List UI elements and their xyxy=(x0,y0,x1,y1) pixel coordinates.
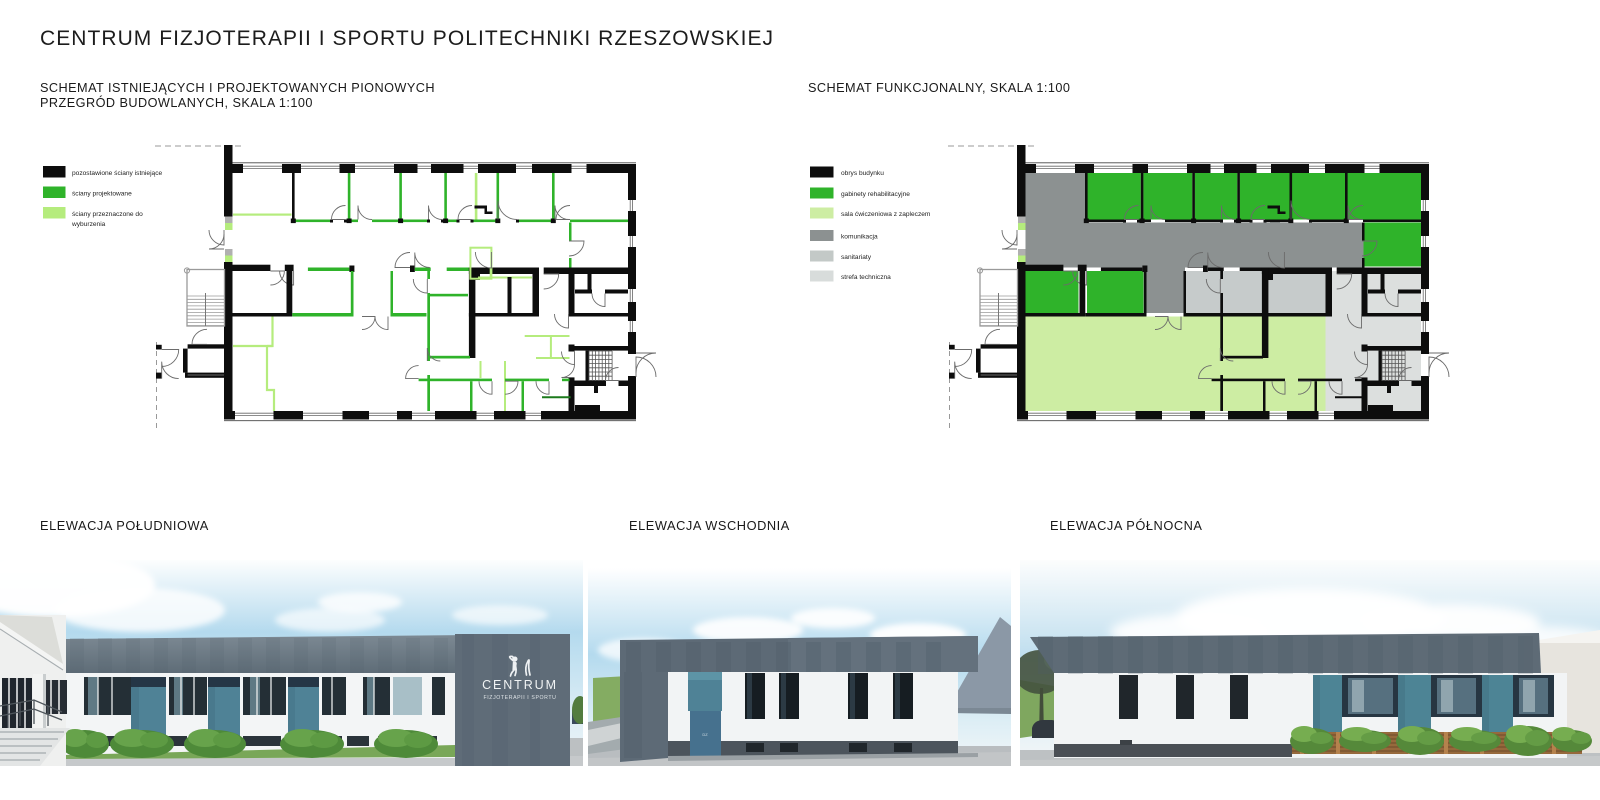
svg-text:ściany przeznaczone do: ściany przeznaczone do xyxy=(72,211,143,218)
svg-text:sanitariaty: sanitariaty xyxy=(841,254,872,261)
svg-text:pozostawione ściany istniejące: pozostawione ściany istniejące xyxy=(72,170,162,177)
svg-text:FIZJOTERAPII I SPORTU: FIZJOTERAPII I SPORTU xyxy=(483,695,556,701)
svg-text:ściany projektowane: ściany projektowane xyxy=(72,191,132,198)
svg-text:DZ: DZ xyxy=(702,732,708,737)
svg-text:komunikacja: komunikacja xyxy=(841,234,878,241)
svg-text:gabinety rehabilitacyjne: gabinety rehabilitacyjne xyxy=(841,191,910,198)
svg-text:sala ćwiczeniowa z zapleczem: sala ćwiczeniowa z zapleczem xyxy=(841,211,931,218)
svg-text:obrys budynku: obrys budynku xyxy=(841,170,884,177)
svg-text:strefa techniczna: strefa techniczna xyxy=(841,274,891,281)
svg-text:CENTRUM: CENTRUM xyxy=(482,678,558,692)
svg-text:wyburzenia: wyburzenia xyxy=(71,221,106,228)
